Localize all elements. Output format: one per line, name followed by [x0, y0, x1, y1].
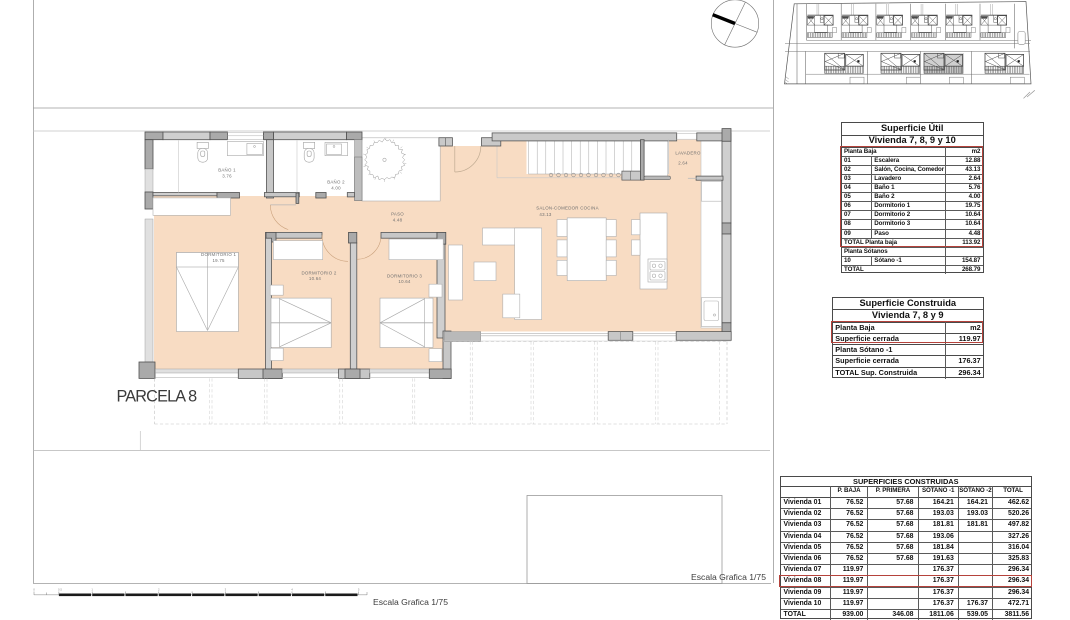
svg-text:3.76: 3.76 [222, 174, 232, 179]
svg-text:Escala Grafica 1/75: Escala Grafica 1/75 [373, 597, 448, 607]
svg-text:19.75: 19.75 [212, 258, 225, 263]
svg-text:DORMITORIO 1: DORMITORIO 1 [201, 252, 236, 257]
svg-text:0: 0 [33, 588, 35, 592]
svg-text:4: 4 [291, 588, 293, 592]
svg-text:1: 1 [91, 588, 93, 592]
svg-text:2: 2 [158, 588, 160, 592]
svg-text:DORMITORIO 2: DORMITORIO 2 [301, 270, 336, 275]
svg-text:SALON-COMEDOR COCINA: SALON-COMEDOR COCINA [536, 205, 599, 210]
svg-text:Escala Grafica 1/75: Escala Grafica 1/75 [691, 572, 766, 582]
svg-text:PASO: PASO [391, 212, 404, 217]
svg-text:2.64: 2.64 [678, 161, 688, 166]
svg-text:LAVADERO: LAVADERO [675, 151, 701, 156]
svg-text:4.48: 4.48 [393, 218, 403, 223]
svg-text:3: 3 [225, 588, 227, 592]
svg-text:BAÑO 1: BAÑO 1 [218, 168, 236, 173]
svg-text:10.64: 10.64 [398, 279, 411, 284]
svg-text:10.64: 10.64 [309, 276, 322, 281]
svg-text:0.5: 0.5 [58, 588, 62, 592]
svg-text:5: 5 [358, 588, 360, 592]
svg-text:BAÑO 2: BAÑO 2 [327, 180, 345, 185]
svg-text:4.00: 4.00 [331, 186, 341, 191]
svg-text:43.13: 43.13 [539, 212, 552, 217]
svg-text:PARCELA 8: PARCELA 8 [117, 388, 198, 406]
svg-text:DORMITORIO 3: DORMITORIO 3 [387, 273, 422, 278]
